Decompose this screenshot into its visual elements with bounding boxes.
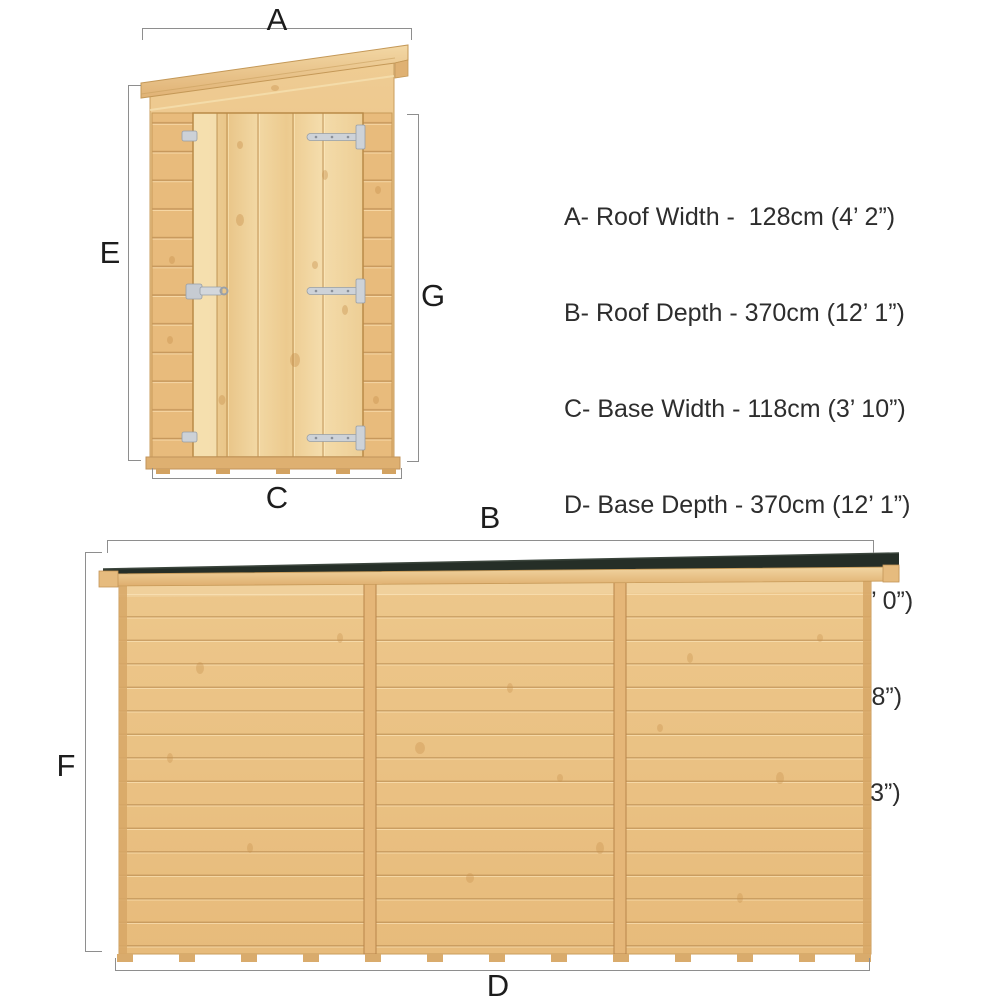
marker-roof-height: F <box>57 748 76 784</box>
side-planks <box>119 594 871 954</box>
side-batten-2 <box>614 577 626 954</box>
shed-side-view <box>80 548 920 968</box>
side-left-corner-trim <box>119 581 127 954</box>
door-pad-bolt-bottom <box>182 432 197 442</box>
side-roof-right-cap <box>883 565 899 582</box>
bracket-base-width-C <box>152 468 402 479</box>
shed-front-view <box>90 10 430 480</box>
door-pad-bolt-top <box>182 131 197 141</box>
bracket-roof-height-F <box>85 552 102 952</box>
marker-door-height: G <box>421 278 445 314</box>
front-door <box>193 113 363 457</box>
bracket-eaves-height-E <box>128 85 141 461</box>
dimension-line-d: D- Base Depth - 370cm (12’ 1”) <box>564 489 913 521</box>
bracket-door-height-G <box>407 114 419 462</box>
shed-dimension-diagram: A E G C A- Roof Width - 128cm (4’ 2”) B-… <box>0 0 1000 1000</box>
bracket-roof-depth-B <box>107 540 874 553</box>
marker-roof-width: A <box>267 2 288 38</box>
dimension-line-c: C- Base Width - 118cm (3’ 10”) <box>564 393 913 425</box>
front-roof-end-cap <box>395 60 408 78</box>
side-right-corner-trim <box>863 576 871 954</box>
dimension-line-a: A- Roof Width - 128cm (4’ 2”) <box>564 201 913 233</box>
marker-roof-depth: B <box>480 500 501 536</box>
marker-eaves-height: E <box>100 235 121 271</box>
side-batten-1 <box>364 578 376 954</box>
marker-base-width: C <box>266 480 288 516</box>
shed-side <box>99 553 899 962</box>
dimension-line-b: B- Roof Depth - 370cm (12’ 1”) <box>564 297 913 329</box>
front-right-panel <box>363 113 392 457</box>
shed-front <box>141 45 408 474</box>
marker-base-depth: D <box>487 968 509 1000</box>
